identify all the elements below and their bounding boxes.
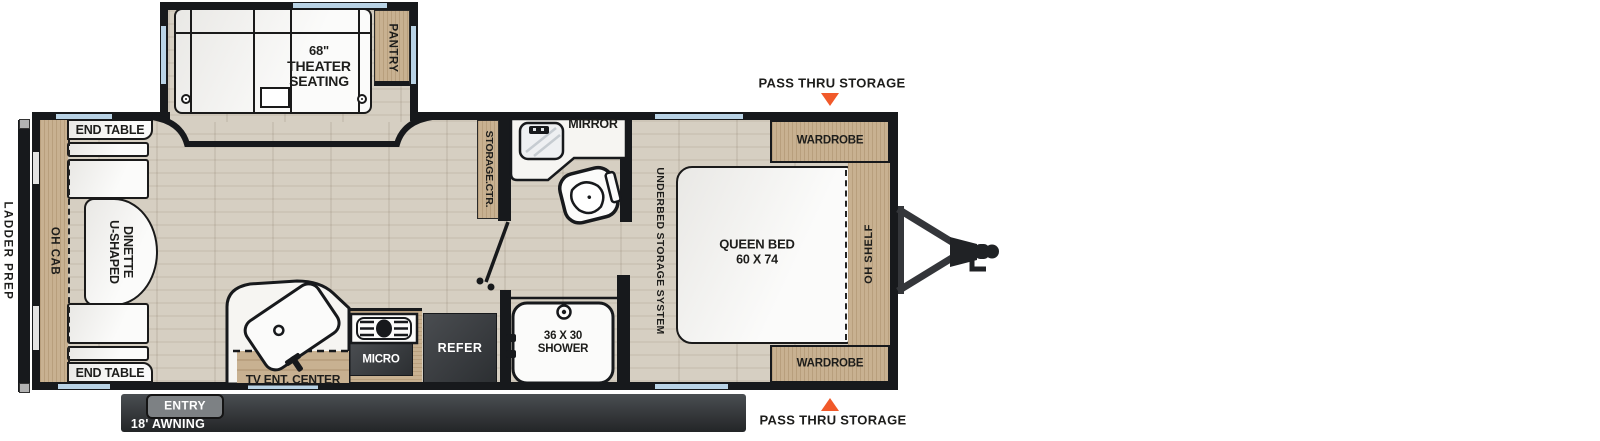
window-slideout-right <box>411 26 416 84</box>
label-theater-seating: 68" THEATER SEATING <box>287 44 351 90</box>
label-tv-ent-center: TV ENT. CENTER <box>246 373 341 386</box>
label-awning: 18' AWNING <box>131 417 205 431</box>
label-theater-line2: THEATER <box>287 59 351 75</box>
rear-ladder-bar <box>18 120 30 392</box>
label-end-table-top: END TABLE <box>76 123 145 137</box>
window-rear-wall-lower <box>33 306 39 350</box>
oh-shelf-dashed-edge <box>845 170 847 340</box>
wall-bath-left <box>498 120 511 221</box>
window-slideout-top <box>293 3 387 8</box>
window-slideout-left <box>161 26 166 84</box>
wall-shower-left <box>500 290 511 383</box>
ladder-bracket-bottom <box>19 383 30 393</box>
dinette-bench-back-bottom <box>67 346 149 361</box>
window-bottom-bedroom <box>655 384 728 389</box>
label-oh-shelf: OH SHELF <box>863 224 875 284</box>
dinette-bench-top <box>67 159 149 199</box>
label-oh-cab: OH CAB <box>48 227 61 275</box>
sofa-backrest-seam <box>176 32 372 34</box>
label-shower-line2: SHOWER <box>538 343 589 356</box>
cabinet-dashed-line <box>68 140 70 362</box>
label-dinette: DINETTE U-SHAPED <box>107 220 135 284</box>
label-entry: ENTRY <box>164 399 206 412</box>
label-theater-size: 68" <box>287 44 351 59</box>
window-bottom-rear <box>58 384 110 389</box>
label-pass-thru-top: PASS THRU STORAGE <box>759 77 906 92</box>
label-pantry: PANTRY <box>386 24 399 73</box>
label-wardrobe-top: WARDROBE <box>797 135 864 148</box>
label-refer: REFER <box>438 341 483 355</box>
wall-shower-right <box>617 275 630 383</box>
sofa-seam <box>253 10 255 114</box>
label-wardrobe-bottom: WARDROBE <box>797 358 864 371</box>
window-top-bedroom <box>655 114 743 119</box>
window-top-rear <box>56 114 112 119</box>
label-end-table-bottom: END TABLE <box>76 366 145 380</box>
label-queen-line2: 60 X 74 <box>719 252 795 266</box>
label-micro: MICRO <box>362 354 399 367</box>
label-pass-thru-bottom: PASS THRU STORAGE <box>760 414 907 429</box>
dinette-bench-back-top <box>67 142 149 157</box>
label-dinette-line2: DINETTE <box>121 220 135 284</box>
label-dinette-line1: U-SHAPED <box>107 220 121 284</box>
pass-thru-arrow-top-icon <box>821 93 839 106</box>
dinette-bench-bottom <box>67 303 149 344</box>
label-queen-line1: QUEEN BED <box>719 238 795 253</box>
label-queen-bed: QUEEN BED 60 X 74 <box>719 238 795 267</box>
hitch-icon <box>898 206 999 294</box>
label-mirror: MIRROR <box>568 117 618 131</box>
wall-bath-right-upper <box>620 120 632 222</box>
wall-bottom <box>32 382 898 390</box>
pass-thru-arrow-bottom-icon <box>821 398 839 411</box>
label-shower: 36 X 30 SHOWER <box>538 330 589 356</box>
wall-front <box>890 112 898 390</box>
sofa-console-tray <box>260 87 290 108</box>
window-rear-wall-upper <box>33 152 39 184</box>
label-theater-line3: SEATING <box>287 74 351 90</box>
label-storage-ctr: STORAGE.CTR. <box>482 131 494 208</box>
label-underbed-storage: UNDERBED STORAGE SYSTEM <box>653 167 665 334</box>
ladder-bracket-top <box>19 119 30 129</box>
label-ladder-prep: LADDER PREP <box>1 202 14 301</box>
label-shower-line1: 36 X 30 <box>538 330 589 343</box>
cupholder-icon <box>181 94 191 104</box>
cupholder-icon <box>357 94 367 104</box>
floorplan-diagram: LADDER PREP OH CAB END TABLE END TABLE D… <box>0 0 1600 441</box>
